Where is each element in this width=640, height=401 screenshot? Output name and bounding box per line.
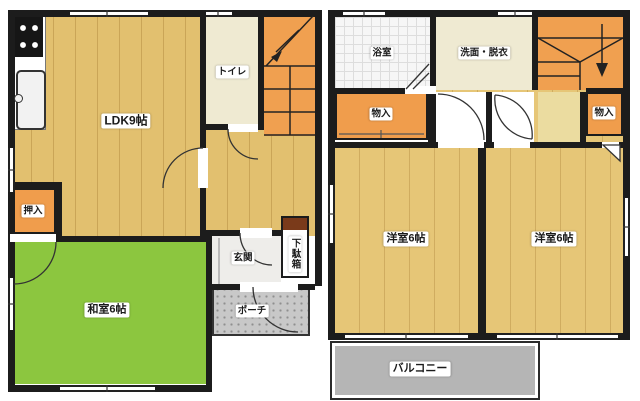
room-label: 押入: [21, 205, 44, 218]
faucet-icon: [14, 94, 23, 103]
floorplan-canvas: LDK9帖 トイレ 押入 和室6帖 玄関 下駄箱 ポーチ: [0, 0, 640, 401]
hall-2f-landing: [538, 92, 580, 142]
door-opening: [492, 92, 534, 142]
window: [498, 10, 532, 17]
room-label: 浴室: [370, 47, 393, 60]
wall-segment: [530, 142, 602, 148]
staircase-2f: [538, 17, 623, 90]
wall-segment: [586, 88, 623, 94]
wall-segment: [200, 130, 206, 148]
window: [206, 10, 232, 17]
wall-segment: [328, 10, 335, 340]
wall-segment: [8, 182, 60, 188]
window: [623, 198, 630, 256]
wall-segment: [206, 236, 212, 392]
window: [70, 10, 148, 17]
door-opening: [198, 148, 208, 188]
wall-segment: [315, 10, 322, 286]
room-label: トイレ: [216, 66, 249, 79]
door-opening: [436, 92, 486, 142]
wall-segment: [206, 284, 240, 290]
door-opening: [228, 124, 258, 132]
wall-segment: [8, 10, 322, 17]
door-opening: [240, 282, 298, 292]
room-label: 物入: [592, 107, 615, 120]
door-opening: [10, 234, 56, 242]
wall-segment: [258, 14, 264, 130]
room-label: 洋室6帖: [531, 232, 576, 247]
wall-segment: [619, 142, 630, 148]
room-label: LDK9帖: [101, 114, 150, 129]
wall-segment: [618, 333, 630, 340]
window: [497, 333, 618, 340]
window: [8, 148, 15, 192]
wall-segment: [56, 182, 62, 236]
wall-segment: [478, 148, 486, 333]
window: [345, 333, 468, 340]
wall-segment: [200, 188, 206, 236]
wall-segment: [468, 333, 497, 340]
door-opening: [240, 228, 272, 238]
wall-segment: [258, 124, 264, 130]
staircase-1f: [264, 14, 315, 136]
room-label: 洋室6帖: [383, 232, 428, 247]
room-label: ポーチ: [236, 305, 269, 318]
wall-segment: [428, 90, 436, 142]
wall-segment: [623, 10, 630, 340]
wall-segment: [580, 92, 586, 142]
room-label: バルコニー: [390, 362, 451, 377]
window: [328, 185, 335, 243]
room-label: 玄関: [231, 252, 254, 265]
wall-segment: [430, 17, 436, 90]
room-label: 洗面・脱衣: [458, 47, 510, 60]
wall-segment: [206, 230, 240, 236]
wall-segment: [532, 17, 538, 90]
room-label: 下駄箱: [289, 236, 302, 272]
wall-segment: [328, 333, 345, 340]
wall-segment: [335, 88, 407, 94]
room-label: 物入: [369, 108, 392, 121]
window: [343, 10, 385, 17]
shoe-cabinet-top: [283, 218, 307, 230]
wall-segment: [8, 10, 15, 392]
wall-segment: [272, 230, 281, 236]
window: [8, 278, 15, 330]
door-opening: [405, 86, 436, 94]
wall-segment: [486, 92, 492, 142]
wall-segment: [328, 142, 438, 148]
wall-segment: [200, 14, 206, 130]
wall-segment: [298, 284, 315, 290]
stove-icon: [15, 17, 43, 57]
room-label: 和室6帖: [84, 303, 129, 318]
window: [60, 385, 155, 392]
wall-segment: [56, 236, 206, 242]
